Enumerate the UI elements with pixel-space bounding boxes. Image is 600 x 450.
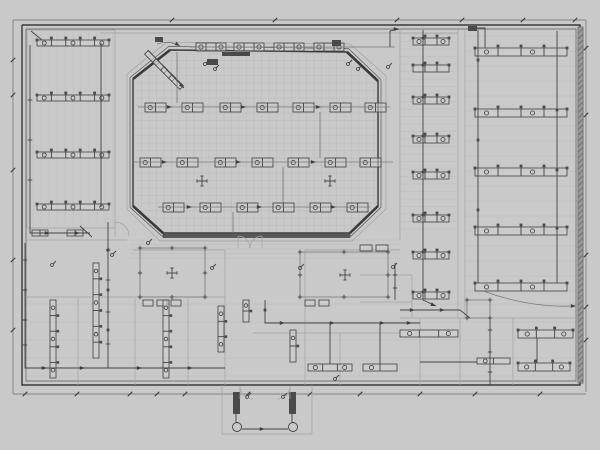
electrical-floor-plan-drawing — [0, 0, 600, 450]
cad-viewport — [0, 0, 600, 450]
light-fixtures — [32, 35, 574, 378]
